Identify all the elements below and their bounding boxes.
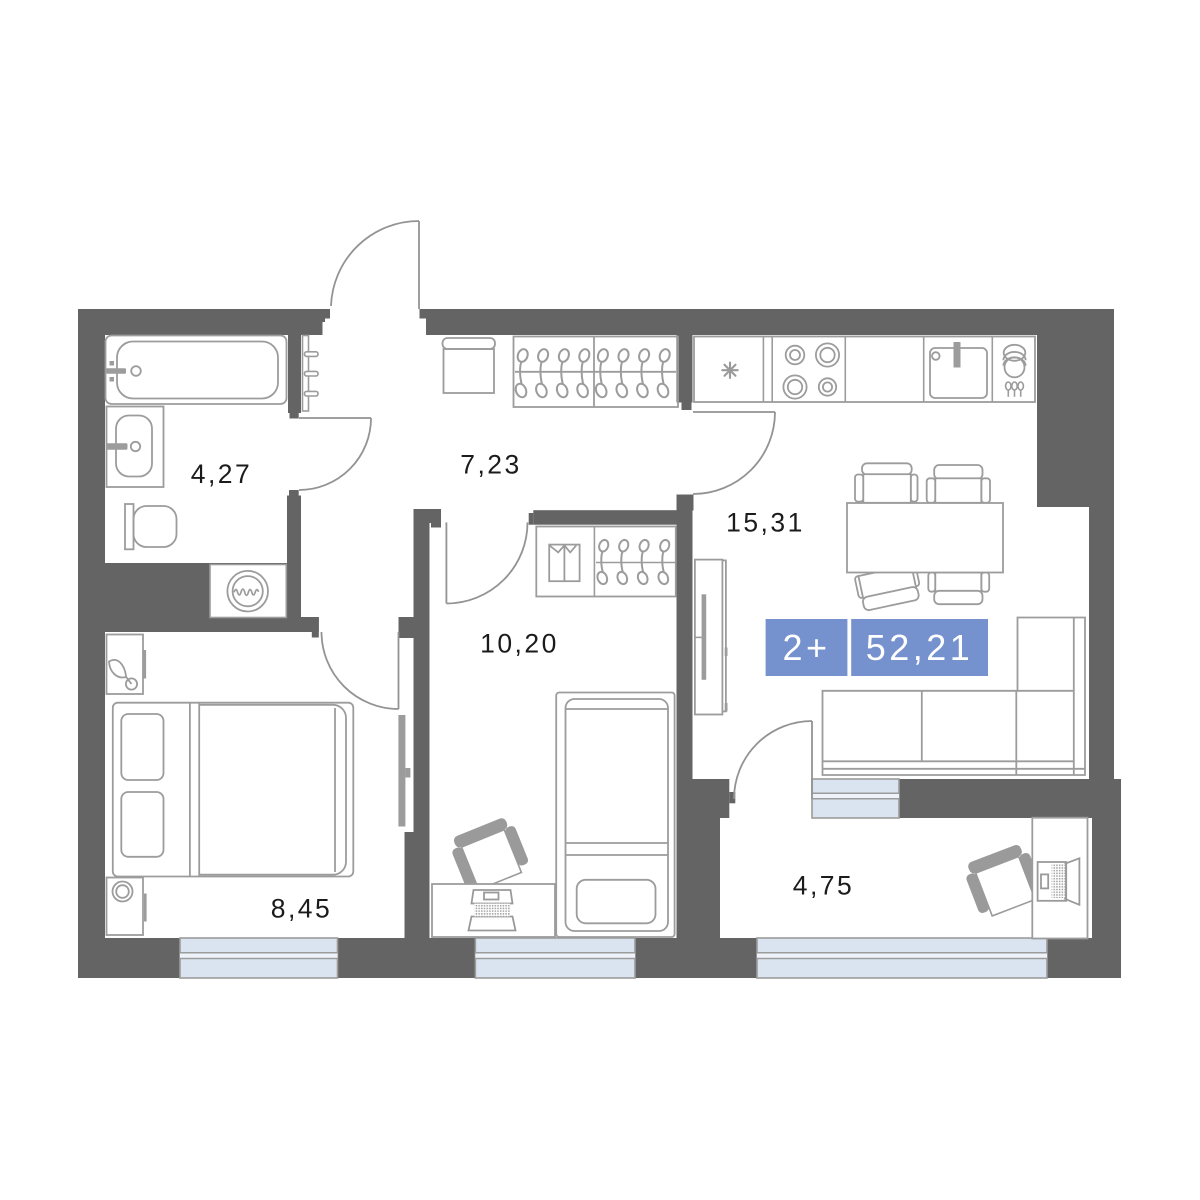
svg-text:7,23: 7,23 (460, 450, 522, 480)
svg-text:4,27: 4,27 (191, 459, 253, 489)
svg-text:52,21: 52,21 (866, 627, 974, 668)
svg-text:2+: 2+ (782, 627, 830, 668)
svg-text:8,45: 8,45 (271, 894, 333, 924)
svg-text:4,75: 4,75 (793, 871, 855, 901)
svg-text:10,20: 10,20 (480, 629, 559, 659)
svg-text:15,31: 15,31 (726, 508, 805, 538)
